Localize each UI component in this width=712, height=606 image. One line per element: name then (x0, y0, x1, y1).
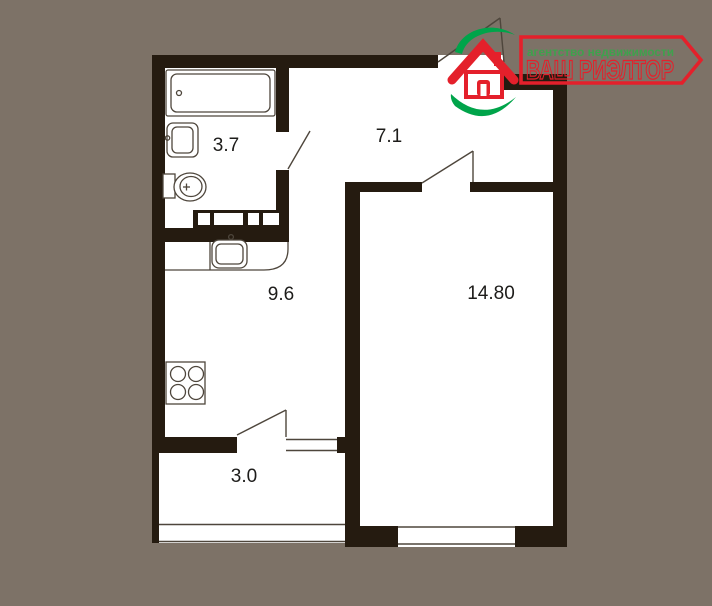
wall-hall-room-right (470, 182, 567, 192)
wall-right (553, 74, 567, 547)
wall-left (152, 55, 165, 453)
stove (166, 362, 205, 404)
wall-room-bottom-right (515, 526, 567, 547)
room-label-kitchen: 9.6 (268, 284, 294, 305)
wall-room-bottom-left (345, 526, 398, 547)
washbasin (165, 123, 198, 157)
floor-plan-image: 3.7 7.1 9.6 14.80 3.0 агентство недвижим… (0, 0, 712, 606)
wall-kitchen-room (345, 182, 360, 547)
room-label-living-room: 14.80 (467, 283, 515, 304)
logo-brand-name: ВАШ РИЭЛТОР (526, 55, 674, 85)
room-label-hallway: 7.1 (376, 126, 402, 147)
toilet (163, 173, 206, 201)
wall-kitchen-balcony-left (152, 437, 237, 453)
floor-plan-canvas: 3.7 7.1 9.6 14.80 3.0 агентство недвижим… (0, 0, 712, 606)
wall-top-left (152, 55, 438, 68)
wall-kitchen-balcony-right (337, 437, 360, 453)
wall-bathroom-right-upper (276, 68, 289, 132)
house-door-inner (481, 84, 487, 96)
bathtub (166, 70, 275, 116)
kitchen-sink (212, 235, 247, 268)
room-label-bathroom: 3.7 (213, 135, 239, 156)
room-label-balcony: 3.0 (231, 466, 257, 487)
wall-balcony-left (152, 453, 159, 543)
